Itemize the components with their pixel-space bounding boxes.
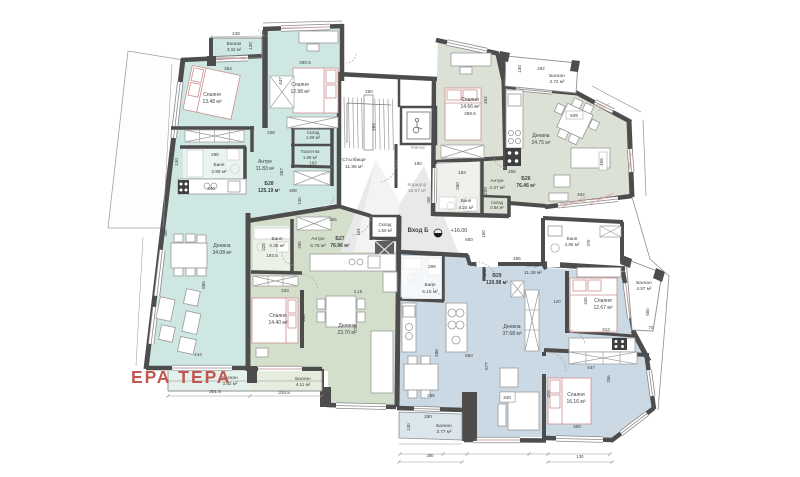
svg-text:3.72 м²: 3.72 м² xyxy=(550,79,565,84)
svg-text:387: 387 xyxy=(279,168,284,176)
svg-text:300: 300 xyxy=(573,424,581,429)
svg-text:4.37 м²: 4.37 м² xyxy=(489,185,505,191)
svg-text:120: 120 xyxy=(553,299,561,304)
svg-text:Дневна: Дневна xyxy=(503,324,520,330)
svg-text:298: 298 xyxy=(428,264,436,269)
svg-text:Б28: Б28 xyxy=(264,181,273,187)
svg-text:150: 150 xyxy=(481,230,486,238)
svg-text:509: 509 xyxy=(570,113,578,118)
svg-text:Б26: Б26 xyxy=(521,176,530,182)
svg-text:Стълбище: Стълбище xyxy=(342,157,366,163)
svg-text:Антре: Антре xyxy=(490,178,504,184)
svg-text:Дневна: Дневна xyxy=(532,133,549,139)
svg-text:650: 650 xyxy=(465,353,473,358)
svg-text:34.08 м²: 34.08 м² xyxy=(212,250,231,256)
svg-text:438: 438 xyxy=(301,314,306,322)
svg-text:Б29: Б29 xyxy=(492,273,501,279)
svg-text:290: 290 xyxy=(297,241,302,249)
svg-text:Вход Б: Вход Б xyxy=(408,228,430,234)
svg-text:447: 447 xyxy=(278,77,283,85)
svg-text:485: 485 xyxy=(513,256,521,261)
svg-text:Спалня: Спалня xyxy=(567,392,585,398)
svg-text:Баня: Баня xyxy=(567,236,578,241)
svg-text:295: 295 xyxy=(211,152,219,157)
svg-text:402: 402 xyxy=(577,192,585,197)
svg-text:456: 456 xyxy=(599,158,604,166)
svg-text:6.76 м²: 6.76 м² xyxy=(310,243,326,249)
svg-text:209: 209 xyxy=(483,187,488,195)
svg-text:130: 130 xyxy=(577,454,585,459)
svg-text:Спалня: Спалня xyxy=(291,82,309,88)
svg-text:190: 190 xyxy=(414,161,422,166)
svg-text:Баня: Баня xyxy=(461,198,472,203)
svg-text:Спалня: Спалня xyxy=(594,298,612,304)
svg-text:452: 452 xyxy=(483,96,488,104)
svg-text:4.11 м²: 4.11 м² xyxy=(296,382,311,387)
svg-text:0.84 м²: 0.84 м² xyxy=(490,205,504,210)
svg-text:289.5: 289.5 xyxy=(464,111,476,116)
svg-text:Дневна: Дневна xyxy=(213,243,230,249)
svg-text:260: 260 xyxy=(365,89,373,94)
svg-text:Склад: Склад xyxy=(379,222,392,227)
svg-text:285: 285 xyxy=(427,393,435,398)
svg-text:130: 130 xyxy=(174,158,179,166)
svg-text:426: 426 xyxy=(546,390,551,398)
svg-text:163: 163 xyxy=(309,161,317,166)
svg-text:2,15: 2,15 xyxy=(354,289,363,294)
svg-text:Балкон: Балкон xyxy=(295,376,311,381)
svg-text:885: 885 xyxy=(201,281,206,289)
svg-text:282: 282 xyxy=(537,66,545,71)
svg-text:4.57 м²: 4.57 м² xyxy=(637,286,652,291)
svg-text:714: 714 xyxy=(353,324,358,332)
svg-text:130: 130 xyxy=(517,65,522,73)
svg-text:447: 447 xyxy=(587,365,595,370)
svg-text:375: 375 xyxy=(586,239,591,247)
svg-text:208: 208 xyxy=(267,130,275,135)
svg-text:18.97 м²: 18.97 м² xyxy=(408,188,427,194)
svg-text:ЕРА ТЕРА: ЕРА ТЕРА xyxy=(131,367,231,387)
svg-text:172: 172 xyxy=(482,269,487,277)
svg-text:11.83 м²: 11.83 м² xyxy=(256,166,275,172)
svg-text:70: 70 xyxy=(649,325,654,330)
svg-text:333: 333 xyxy=(281,288,289,293)
svg-text:280: 280 xyxy=(427,453,435,458)
svg-text:340: 340 xyxy=(207,186,215,191)
svg-text:Балкон: Балкон xyxy=(227,41,242,46)
svg-text:248: 248 xyxy=(232,31,240,36)
svg-text:464: 464 xyxy=(371,123,376,131)
svg-text:Баня: Баня xyxy=(213,162,224,168)
svg-text:13.48 м²: 13.48 м² xyxy=(202,99,221,105)
svg-text:163: 163 xyxy=(458,170,466,175)
svg-text:Тоалетна: Тоалетна xyxy=(301,149,321,154)
svg-text:290: 290 xyxy=(424,414,432,419)
svg-text:255: 255 xyxy=(508,169,516,174)
svg-text:Б27: Б27 xyxy=(335,236,344,242)
svg-text:16.16 м²: 16.16 м² xyxy=(566,399,585,405)
svg-text:555: 555 xyxy=(329,217,337,222)
svg-text:365: 365 xyxy=(163,229,168,237)
svg-text:260: 260 xyxy=(455,182,460,190)
svg-text:316.5: 316.5 xyxy=(278,390,290,395)
svg-text:Асансьор: Асансьор xyxy=(411,146,425,150)
svg-text:1.98 м²: 1.98 м² xyxy=(303,155,318,160)
svg-text:24.75 м²: 24.75 м² xyxy=(531,140,550,146)
svg-text:3.77 м²: 3.77 м² xyxy=(437,429,452,434)
svg-text:Баня: Баня xyxy=(271,236,282,242)
svg-text:Балкон: Балкон xyxy=(636,280,652,285)
svg-text:1.08 м²: 1.08 м² xyxy=(306,135,321,140)
svg-text:11.96 м²: 11.96 м² xyxy=(345,164,363,170)
svg-text:650: 650 xyxy=(465,237,473,242)
svg-text:4.35 м²: 4.35 м² xyxy=(269,243,285,249)
svg-text:103: 103 xyxy=(356,228,361,236)
svg-text:12.67 м²: 12.67 м² xyxy=(593,305,612,311)
svg-text:76.46 м²: 76.46 м² xyxy=(516,183,536,189)
svg-text:340: 340 xyxy=(503,395,511,400)
svg-text:Спалня: Спалня xyxy=(203,92,221,98)
svg-text:Спалня: Спалня xyxy=(269,313,287,319)
svg-text:120.98 м²: 120.98 м² xyxy=(486,280,508,286)
svg-text:225: 225 xyxy=(261,243,266,251)
svg-text:1.60 м²: 1.60 м² xyxy=(378,228,393,233)
svg-text:301.5: 301.5 xyxy=(209,389,221,394)
svg-text:4.86 м²: 4.86 м² xyxy=(565,242,580,247)
svg-text:193.5: 193.5 xyxy=(266,253,278,258)
svg-text:125.19 м²: 125.19 м² xyxy=(258,188,280,194)
svg-text:Балкон: Балкон xyxy=(436,423,452,428)
svg-text:364: 364 xyxy=(224,66,232,71)
svg-text:256: 256 xyxy=(606,375,611,383)
svg-text:12.98 м²: 12.98 м² xyxy=(290,89,309,95)
svg-text:Спалня: Спалня xyxy=(461,97,479,103)
svg-text:130: 130 xyxy=(248,42,253,50)
svg-text:5.15 м²: 5.15 м² xyxy=(422,289,438,295)
svg-text:Баня: Баня xyxy=(424,282,435,288)
svg-text:408: 408 xyxy=(289,188,297,193)
svg-text:455: 455 xyxy=(426,196,431,204)
svg-text:Балкон: Балкон xyxy=(549,73,565,78)
svg-text:486: 486 xyxy=(434,349,439,357)
svg-text:444: 444 xyxy=(194,352,202,357)
svg-text:130: 130 xyxy=(297,197,302,205)
svg-text:Антре: Антре xyxy=(258,159,272,165)
svg-text:313: 313 xyxy=(602,327,610,332)
svg-text:436: 436 xyxy=(583,297,588,305)
svg-text:4.24 м²: 4.24 м² xyxy=(459,205,474,210)
svg-text:14.40 м²: 14.40 м² xyxy=(268,320,287,326)
svg-text:11.28 м²: 11.28 м² xyxy=(524,270,542,276)
svg-text:Коридор: Коридор xyxy=(408,182,427,188)
svg-text:677: 677 xyxy=(484,362,489,370)
svg-text:14.66 м²: 14.66 м² xyxy=(460,104,479,110)
svg-text:+16.00: +16.00 xyxy=(451,228,468,234)
svg-text:290.5: 290.5 xyxy=(299,60,311,65)
svg-text:650: 650 xyxy=(645,308,650,316)
svg-text:37.68 м²: 37.68 м² xyxy=(502,331,521,337)
svg-text:130: 130 xyxy=(406,423,411,431)
svg-text:Антре: Антре xyxy=(311,236,325,242)
svg-text:Антре: Антре xyxy=(526,263,540,269)
svg-text:3.99 м²: 3.99 м² xyxy=(211,169,227,175)
svg-text:3.32 м²: 3.32 м² xyxy=(227,47,242,52)
svg-text:76.96 м²: 76.96 м² xyxy=(330,243,350,249)
